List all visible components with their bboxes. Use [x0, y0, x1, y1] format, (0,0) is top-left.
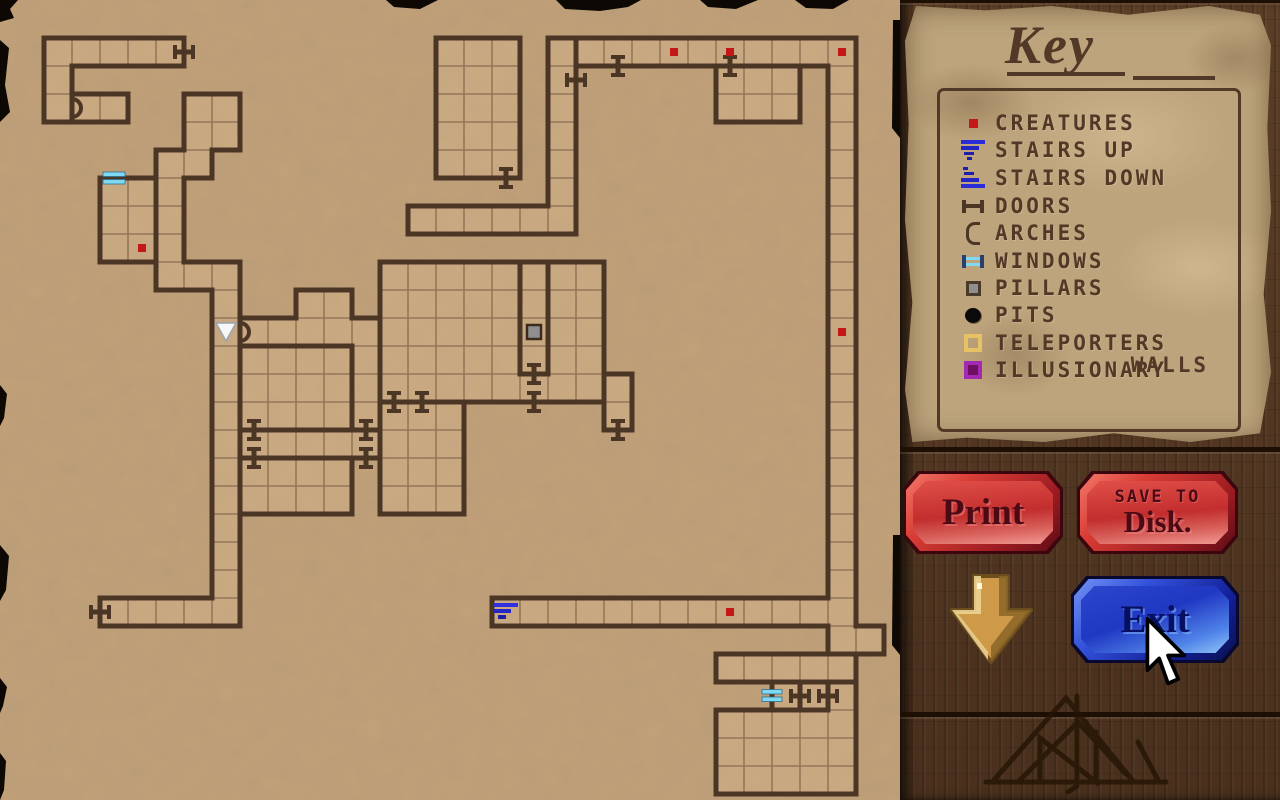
- print-button[interactable]: Print: [903, 471, 1063, 554]
- legend-row-creatures: CREATURES: [951, 110, 1221, 136]
- print-button-face: Print: [913, 481, 1053, 544]
- teleporter-icon: [964, 334, 982, 352]
- legend-row-pillars: PILLARS: [951, 275, 1221, 301]
- legend-row-windows: WINDOWS: [951, 248, 1221, 274]
- legend-row-doors: DOORS: [951, 193, 1221, 219]
- wood-seam: [900, 447, 1280, 452]
- legend-row-stairs-down: STAIRS DOWN: [951, 165, 1221, 191]
- door-icon: [962, 200, 984, 213]
- creature-icon: [726, 48, 734, 56]
- creature-icon: [138, 244, 146, 252]
- logo-serif: [1068, 786, 1077, 792]
- key-title: Key: [1005, 14, 1095, 76]
- pillar-icon: [527, 325, 541, 339]
- creature-icon: [969, 119, 978, 128]
- creature-icon: [838, 48, 846, 56]
- level-down-arrow-button[interactable]: [944, 572, 1044, 668]
- save-button-face: SAVE TO Disk.: [1087, 481, 1228, 544]
- legend-label-walls: WALLS: [995, 353, 1209, 377]
- legend-row-pits: PITS: [951, 302, 1221, 328]
- map-screen: Key CREATURES STAIRS UP STAIRS DOWN DOOR…: [0, 0, 1280, 800]
- logo-n-glyph: [1040, 732, 1096, 782]
- exit-button[interactable]: Exit: [1071, 576, 1239, 663]
- pit-icon: [965, 308, 981, 323]
- stairs-up-icon: [960, 139, 986, 161]
- legend-row-stairs-up: STAIRS UP: [951, 137, 1221, 163]
- creature-icon: [726, 608, 734, 616]
- carved-logo: [980, 683, 1175, 795]
- window-icon: [962, 255, 984, 268]
- save-to-disk-button[interactable]: SAVE TO Disk.: [1077, 471, 1238, 554]
- wood-seam: [900, 0, 1280, 3]
- stairs-down-icon: [960, 167, 986, 189]
- arch-icon: [966, 222, 980, 245]
- logo-stroke: [1138, 742, 1158, 780]
- pillar-icon: [966, 281, 981, 296]
- dungeon-map-svg: [0, 0, 900, 800]
- key-legend-panel: Key CREATURES STAIRS UP STAIRS DOWN DOOR…: [905, 6, 1271, 442]
- down-arrow-glint: [977, 583, 982, 589]
- creature-icon: [670, 48, 678, 56]
- dungeon-map: [0, 0, 900, 800]
- key-title-underline: [1007, 72, 1125, 76]
- exit-button-face: Exit: [1081, 586, 1229, 653]
- illusionary-wall-icon: [964, 361, 982, 379]
- key-title-underline: [1133, 76, 1215, 80]
- creature-icon: [838, 328, 846, 336]
- legend-row-arches: ARCHES: [951, 220, 1221, 246]
